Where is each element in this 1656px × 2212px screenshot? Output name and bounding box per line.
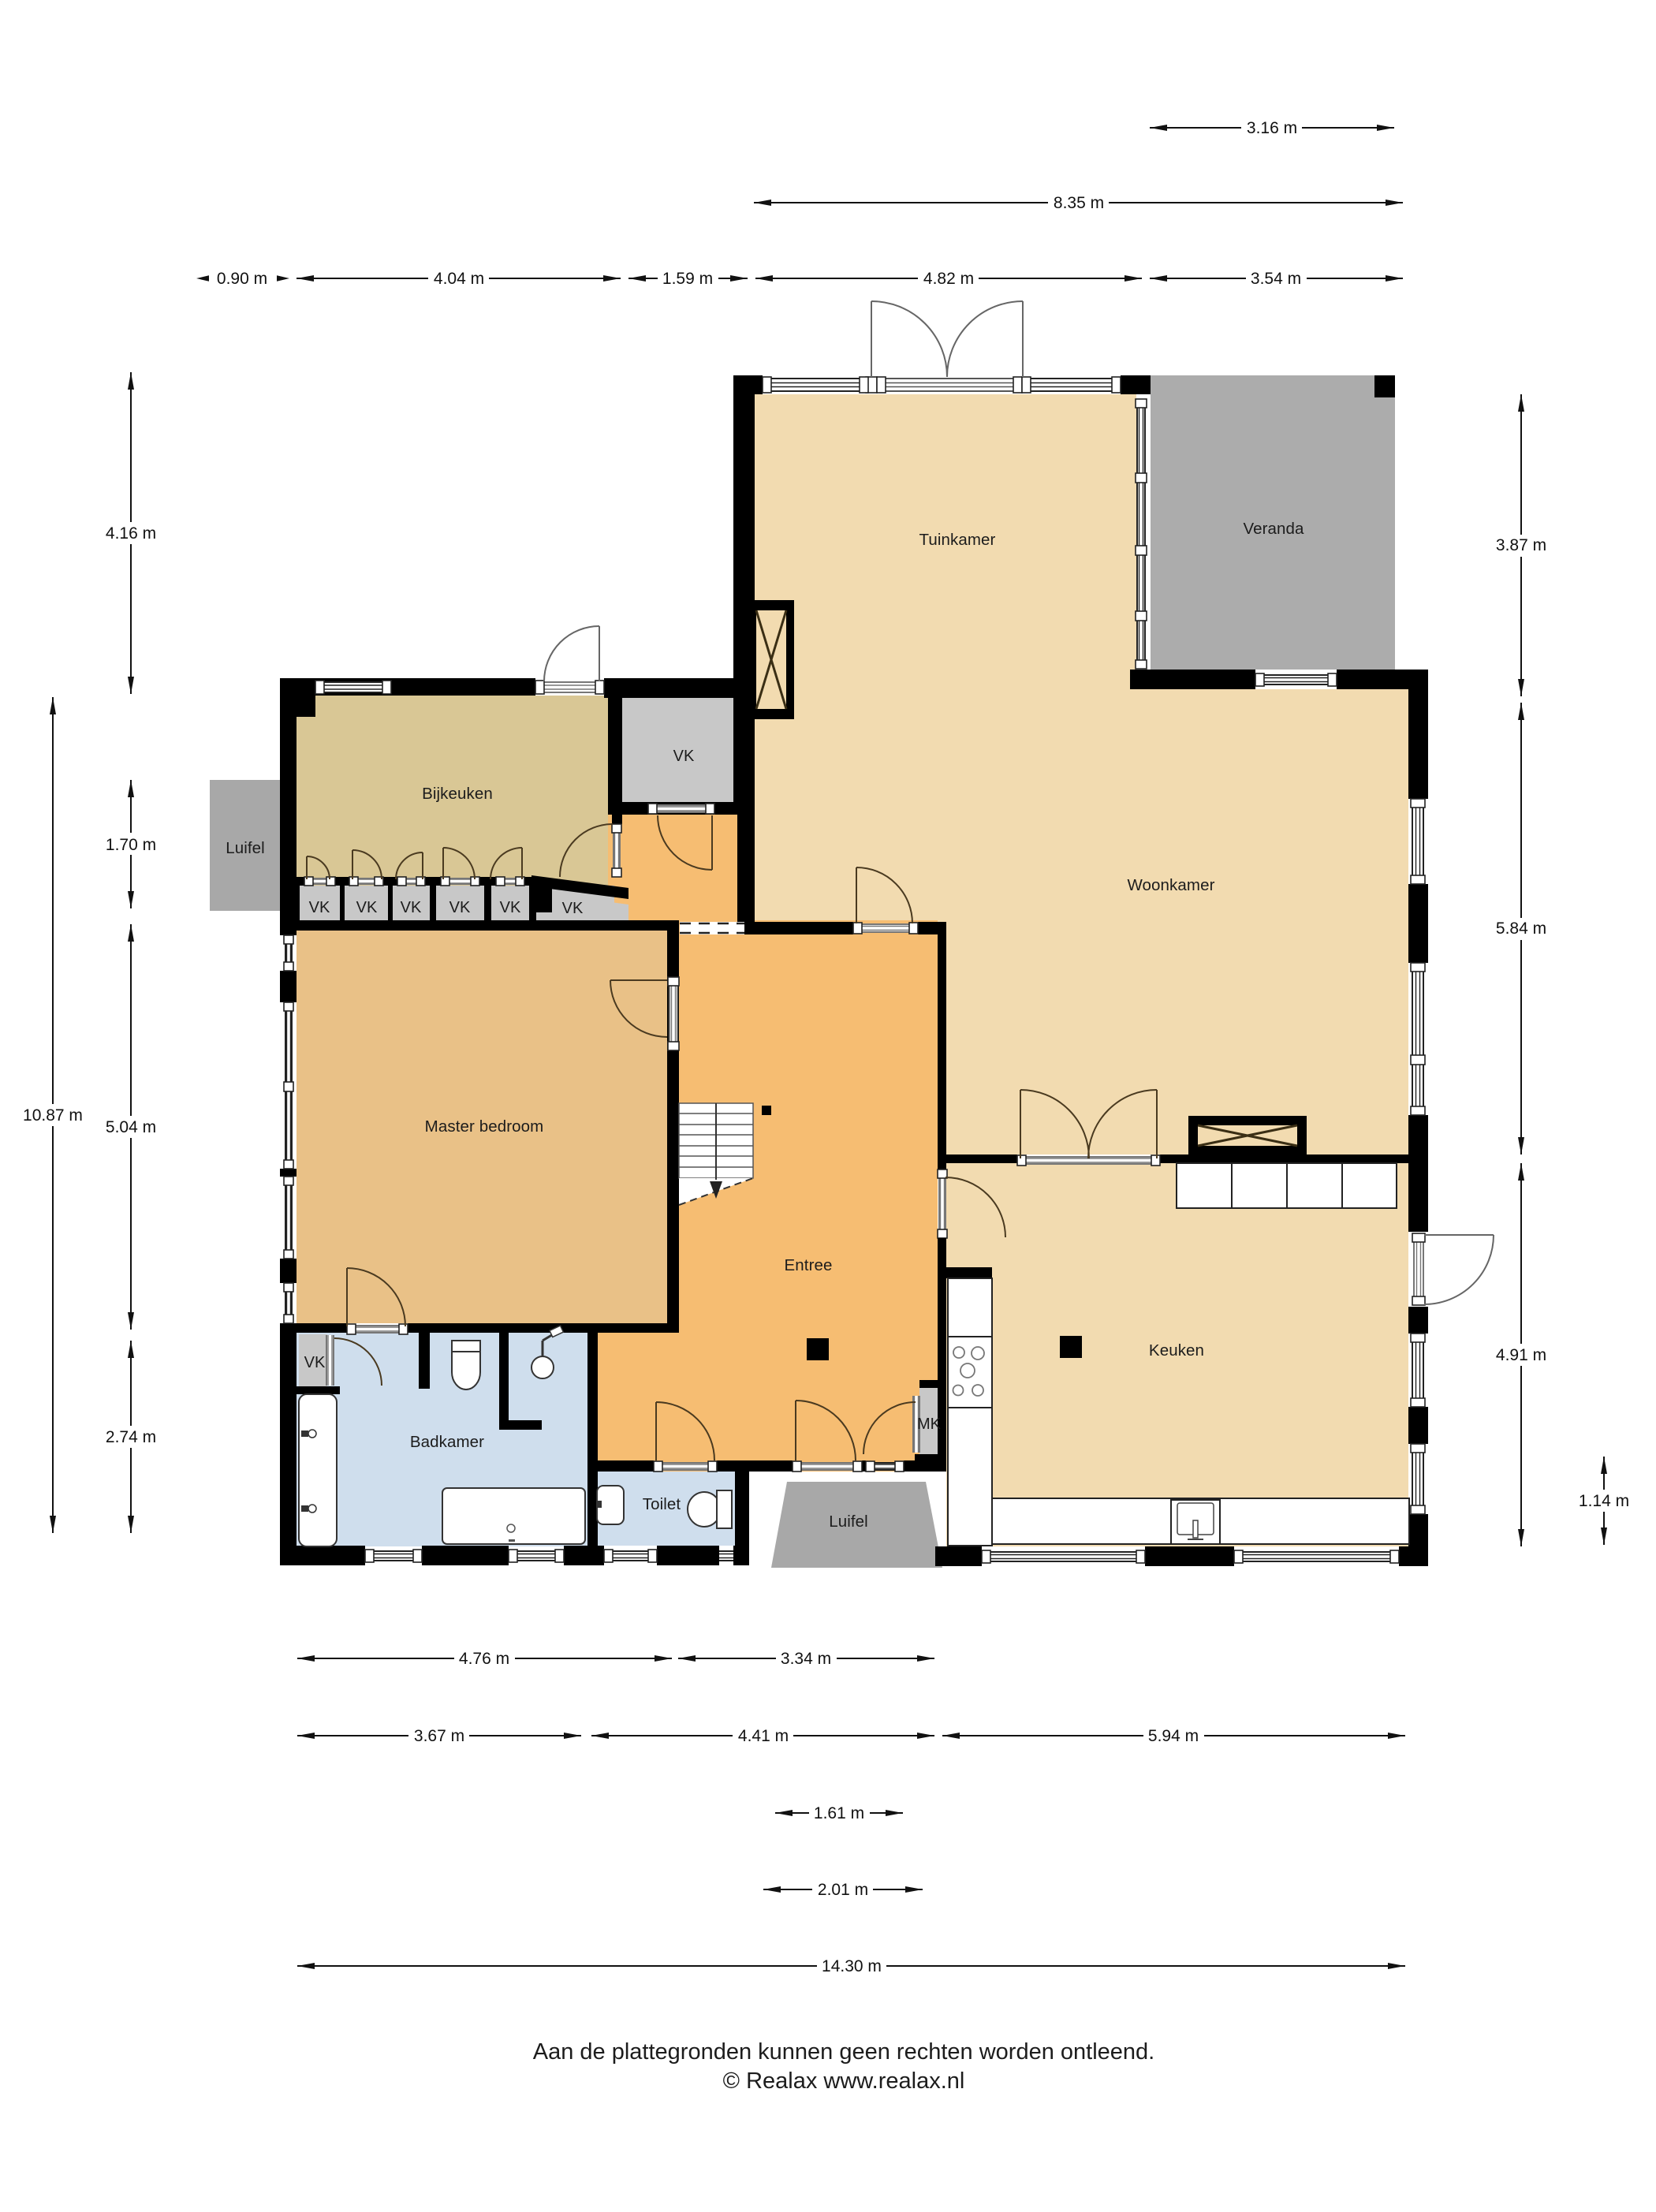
svg-text:Luifel: Luifel	[226, 839, 265, 857]
svg-text:2.74 m: 2.74 m	[106, 1428, 156, 1446]
svg-text:Tuinkamer: Tuinkamer	[919, 531, 996, 549]
svg-text:MK: MK	[917, 1416, 942, 1433]
svg-text:VK: VK	[309, 899, 330, 916]
svg-text:1.70 m: 1.70 m	[106, 836, 156, 854]
svg-text:VK: VK	[356, 899, 378, 916]
svg-text:Woonkamer: Woonkamer	[1127, 876, 1214, 894]
svg-text:Master bedroom: Master bedroom	[425, 1117, 544, 1136]
svg-text:4.82 m: 4.82 m	[923, 270, 974, 288]
svg-text:3.87 m: 3.87 m	[1496, 536, 1546, 554]
svg-text:3.67 m: 3.67 m	[414, 1727, 464, 1745]
svg-text:4.91 m: 4.91 m	[1496, 1346, 1546, 1364]
svg-text:VK: VK	[449, 899, 471, 916]
svg-text:1.61 m: 1.61 m	[814, 1804, 864, 1822]
svg-text:© Realax www.realax.nl: © Realax www.realax.nl	[723, 2068, 965, 2094]
svg-text:4.41 m: 4.41 m	[738, 1727, 789, 1745]
svg-text:10.87 m: 10.87 m	[23, 1106, 83, 1125]
svg-text:VK: VK	[562, 900, 584, 917]
svg-text:5.94 m: 5.94 m	[1148, 1727, 1199, 1745]
svg-text:Veranda: Veranda	[1243, 520, 1304, 538]
svg-text:4.16 m: 4.16 m	[106, 524, 156, 543]
svg-text:14.30 m: 14.30 m	[822, 1957, 882, 1975]
svg-text:1.59 m: 1.59 m	[662, 270, 713, 288]
svg-text:3.16 m: 3.16 m	[1247, 119, 1297, 137]
svg-text:0.90 m: 0.90 m	[217, 270, 267, 288]
svg-text:Luifel: Luifel	[829, 1513, 868, 1531]
svg-text:8.35 m: 8.35 m	[1054, 194, 1104, 212]
svg-text:5.04 m: 5.04 m	[106, 1118, 156, 1136]
svg-text:VK: VK	[401, 899, 422, 916]
svg-text:Entree: Entree	[785, 1256, 833, 1274]
svg-text:VK: VK	[500, 899, 521, 916]
svg-text:Toilet: Toilet	[643, 1495, 681, 1513]
svg-text:Aan de plattegronden kunnen ge: Aan de plattegronden kunnen geen rechten…	[533, 2039, 1154, 2065]
svg-text:5.84 m: 5.84 m	[1496, 919, 1546, 938]
svg-text:VK: VK	[673, 748, 695, 765]
svg-text:Bijkeuken: Bijkeuken	[422, 785, 493, 803]
svg-text:2.01 m: 2.01 m	[818, 1881, 868, 1899]
svg-text:3.54 m: 3.54 m	[1251, 270, 1301, 288]
svg-text:3.34 m: 3.34 m	[781, 1650, 831, 1668]
svg-text:4.04 m: 4.04 m	[434, 270, 484, 288]
svg-text:VK: VK	[304, 1354, 326, 1371]
svg-text:4.76 m: 4.76 m	[459, 1650, 509, 1668]
svg-text:Badkamer: Badkamer	[410, 1433, 484, 1451]
svg-text:Keuken: Keuken	[1149, 1341, 1204, 1360]
svg-text:1.14 m: 1.14 m	[1579, 1492, 1629, 1510]
